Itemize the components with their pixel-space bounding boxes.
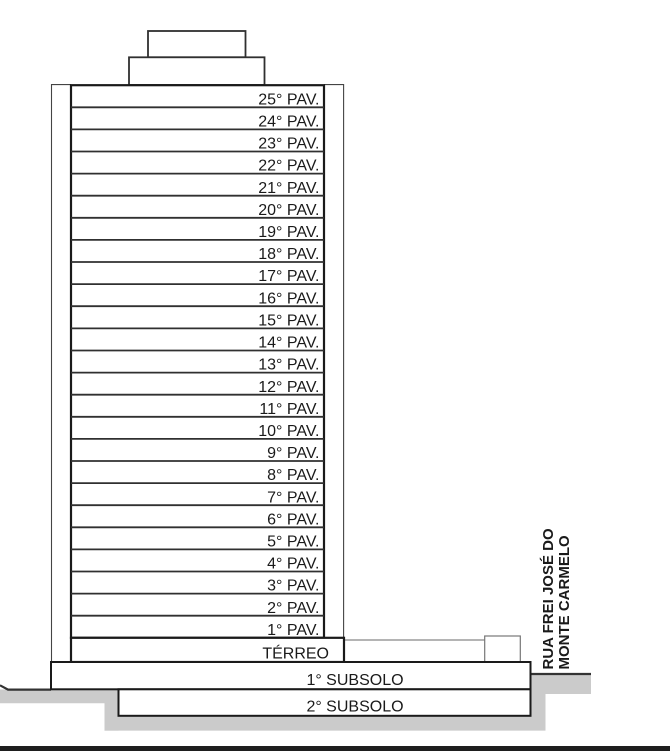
svg-text:2° SUBSOLO: 2° SUBSOLO	[306, 699, 403, 716]
svg-text:9° PAV.: 9° PAV.	[267, 445, 319, 462]
svg-text:10° PAV.: 10° PAV.	[258, 423, 319, 440]
svg-text:12° PAV.: 12° PAV.	[258, 379, 319, 396]
svg-text:11° PAV.: 11° PAV.	[259, 401, 319, 418]
svg-text:6° PAV.: 6° PAV.	[267, 511, 319, 528]
svg-text:5° PAV.: 5° PAV.	[267, 534, 319, 551]
svg-text:21° PAV.: 21° PAV.	[258, 180, 319, 197]
svg-text:7° PAV.: 7° PAV.	[267, 489, 319, 506]
svg-text:17° PAV.: 17° PAV.	[258, 268, 319, 285]
svg-text:RUA FREI JOSÉ DO: RUA FREI JOSÉ DO	[540, 528, 557, 669]
svg-text:MONTE CARMELO: MONTE CARMELO	[556, 535, 573, 669]
svg-text:19° PAV.: 19° PAV.	[258, 224, 319, 241]
svg-text:16° PAV.: 16° PAV.	[258, 290, 319, 307]
svg-text:4° PAV.: 4° PAV.	[267, 556, 319, 573]
svg-text:20° PAV.: 20° PAV.	[258, 202, 319, 219]
svg-text:TÉRREO: TÉRREO	[262, 644, 329, 663]
svg-text:15° PAV.: 15° PAV.	[258, 313, 319, 330]
svg-text:1° SUBSOLO: 1° SUBSOLO	[306, 672, 403, 689]
svg-text:1° PAV.: 1° PAV.	[267, 622, 319, 639]
svg-text:2° PAV.: 2° PAV.	[267, 600, 319, 617]
svg-text:8° PAV.: 8° PAV.	[267, 467, 319, 484]
svg-text:14° PAV.: 14° PAV.	[258, 335, 319, 352]
svg-text:24° PAV.: 24° PAV.	[258, 114, 319, 131]
svg-text:25° PAV.: 25° PAV.	[258, 91, 319, 108]
svg-text:18° PAV.: 18° PAV.	[258, 246, 319, 263]
svg-text:22° PAV.: 22° PAV.	[258, 158, 319, 175]
svg-text:23° PAV.: 23° PAV.	[258, 136, 319, 153]
svg-text:3° PAV.: 3° PAV.	[267, 578, 319, 595]
svg-text:13° PAV.: 13° PAV.	[258, 357, 319, 374]
